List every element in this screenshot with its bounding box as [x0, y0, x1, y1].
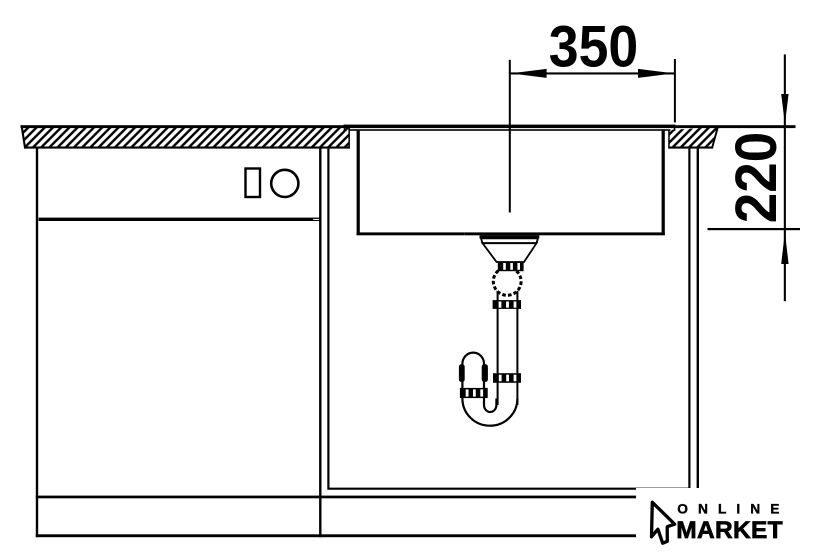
svg-text:MARKET: MARKET: [676, 517, 783, 544]
svg-text:350: 350: [549, 15, 639, 80]
svg-text:220: 220: [724, 132, 789, 224]
svg-text:ONLINE: ONLINE: [677, 502, 789, 517]
